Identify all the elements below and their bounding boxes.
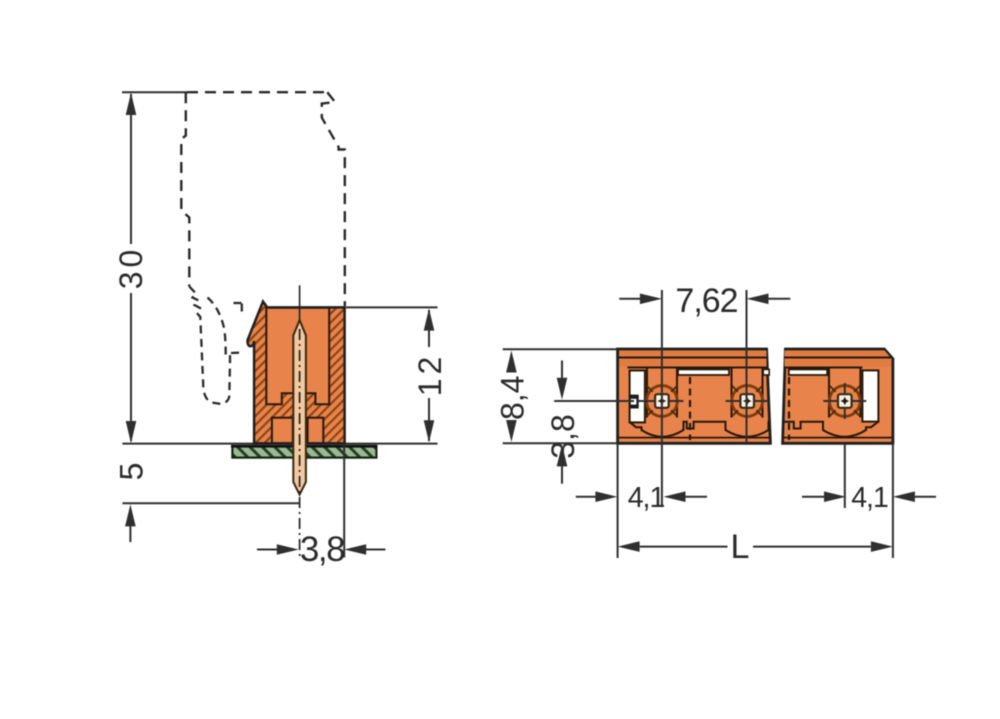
svg-text:7,62: 7,62 bbox=[675, 282, 737, 320]
svg-text:12: 12 bbox=[412, 353, 448, 397]
svg-text:5: 5 bbox=[114, 463, 150, 481]
svg-text:8,4: 8,4 bbox=[495, 376, 531, 420]
svg-text:L: L bbox=[731, 528, 750, 566]
svg-text:4,1: 4,1 bbox=[851, 482, 888, 514]
svg-text:3,8: 3,8 bbox=[300, 530, 344, 569]
svg-text:4,1: 4,1 bbox=[628, 482, 665, 514]
svg-text:30: 30 bbox=[113, 246, 149, 290]
svg-text:3,8: 3,8 bbox=[545, 414, 581, 458]
